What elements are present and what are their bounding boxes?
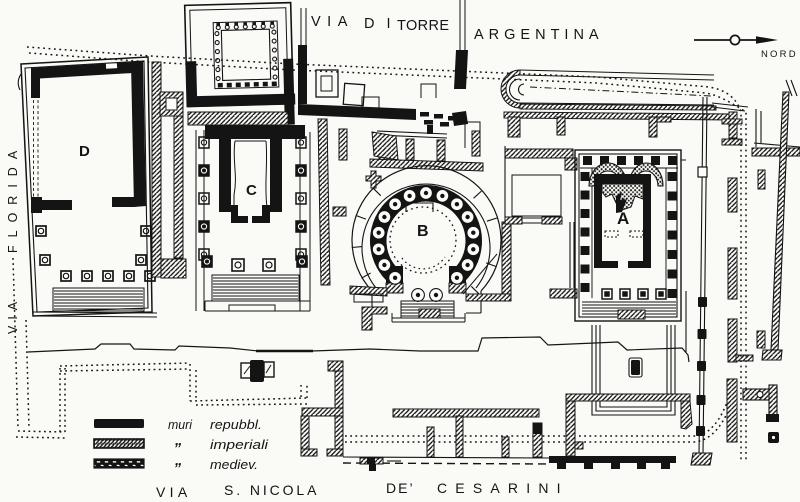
svg-text:S. NICOLA: S. NICOLA xyxy=(224,482,319,498)
svg-text:NORD: NORD xyxy=(761,49,798,60)
svg-text:DE’: DE’ xyxy=(386,480,415,496)
svg-text:D: D xyxy=(79,143,90,160)
svg-text:„: „ xyxy=(174,452,183,469)
svg-text:imperiali: imperiali xyxy=(210,438,270,452)
svg-text:„: „ xyxy=(174,432,183,449)
svg-text:VIA: VIA xyxy=(6,296,20,334)
svg-text:C: C xyxy=(246,182,257,199)
svg-text:CESARINI: CESARINI xyxy=(437,480,569,496)
svg-text:mediev.: mediev. xyxy=(210,458,258,472)
svg-text:ARGENTINA: ARGENTINA xyxy=(474,27,604,43)
svg-text:muri: muri xyxy=(168,418,193,432)
svg-text:TORRE: TORRE xyxy=(397,18,450,34)
svg-text:FLORIDA: FLORIDA xyxy=(6,143,20,253)
svg-text:B: B xyxy=(417,223,429,240)
svg-text:repubbl.: repubbl. xyxy=(210,418,262,432)
svg-text:VIA: VIA xyxy=(311,14,354,30)
svg-text:A: A xyxy=(617,209,629,228)
svg-text:VIA: VIA xyxy=(156,484,191,500)
